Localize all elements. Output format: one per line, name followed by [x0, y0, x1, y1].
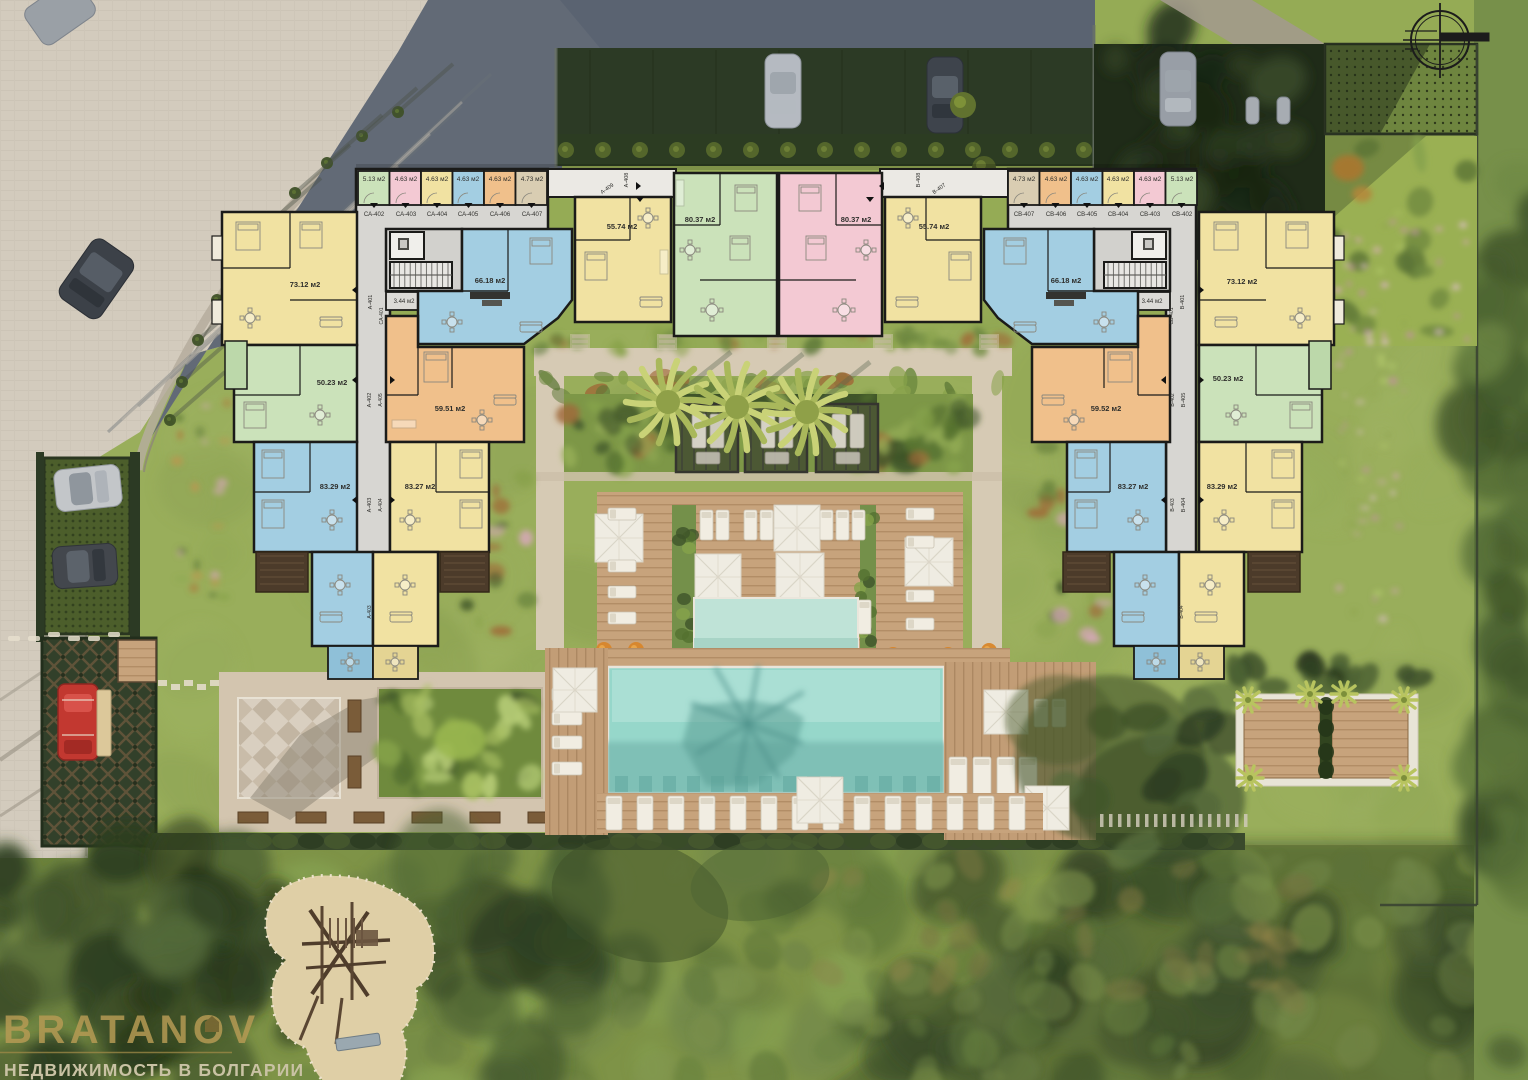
svg-text:CB-403: CB-403 — [1140, 212, 1161, 218]
svg-text:55.74 м2: 55.74 м2 — [919, 222, 950, 231]
svg-text:50.23 м2: 50.23 м2 — [1213, 374, 1244, 383]
svg-text:4.73 м2: 4.73 м2 — [521, 176, 544, 183]
svg-text:НЕДВИЖИМОСТЬ В БОЛГАРИИ: НЕДВИЖИМОСТЬ В БОЛГАРИИ — [4, 1060, 304, 1080]
svg-text:CA-407: CA-407 — [522, 212, 543, 218]
svg-text:CA-401: CA-401 — [379, 307, 385, 324]
svg-text:73.12 м2: 73.12 м2 — [290, 280, 321, 289]
svg-text:B-402: B-402 — [1170, 393, 1176, 407]
svg-text:B-408: B-408 — [916, 173, 922, 188]
svg-text:4.63 м2: 4.63 м2 — [489, 176, 512, 183]
svg-text:CB-404: CB-404 — [1108, 212, 1129, 218]
svg-text:80.37 м2: 80.37 м2 — [841, 215, 872, 224]
svg-text:59.52 м2: 59.52 м2 — [1091, 404, 1122, 413]
svg-text:BRATANOV: BRATANOV — [3, 1008, 260, 1052]
svg-text:CB-406: CB-406 — [1046, 212, 1067, 218]
svg-text:B-403: B-403 — [1170, 498, 1176, 512]
svg-text:CA-404: CA-404 — [427, 212, 448, 218]
svg-text:80.37 м2: 80.37 м2 — [685, 215, 716, 224]
svg-text:CB-405: CB-405 — [1077, 212, 1098, 218]
svg-text:CA-406: CA-406 — [490, 212, 511, 218]
svg-text:4.63 м2: 4.63 м2 — [1139, 176, 1162, 183]
svg-text:4.63 м2: 4.63 м2 — [1076, 176, 1099, 183]
svg-text:B-404: B-404 — [1181, 498, 1187, 513]
svg-text:A-405: A-405 — [378, 393, 384, 407]
svg-text:4.63 м2: 4.63 м2 — [1045, 176, 1068, 183]
svg-text:5.13 м2: 5.13 м2 — [1171, 176, 1194, 183]
svg-text:B-404: B-404 — [1179, 605, 1185, 619]
svg-text:83.29 м2: 83.29 м2 — [320, 482, 351, 491]
svg-text:4.73 м2: 4.73 м2 — [1013, 176, 1036, 183]
svg-text:CB-407: CB-407 — [1014, 212, 1035, 218]
svg-text:A-403: A-403 — [367, 498, 373, 513]
svg-text:CA-403: CA-403 — [396, 212, 417, 218]
svg-text:66.18 м2: 66.18 м2 — [1051, 276, 1082, 285]
svg-text:4.63 м2: 4.63 м2 — [395, 176, 418, 183]
svg-text:A-403: A-403 — [367, 605, 373, 619]
svg-text:83.27 м2: 83.27 м2 — [405, 482, 436, 491]
svg-text:4.63 м2: 4.63 м2 — [426, 176, 449, 183]
svg-text:73.12 м2: 73.12 м2 — [1227, 277, 1258, 286]
svg-text:B-401: B-401 — [1180, 295, 1186, 310]
svg-text:CA-405: CA-405 — [458, 212, 479, 218]
svg-text:3.44 м2: 3.44 м2 — [1142, 299, 1163, 305]
svg-text:3.44 м2: 3.44 м2 — [394, 299, 415, 305]
svg-text:55.74 м2: 55.74 м2 — [607, 222, 638, 231]
svg-text:4.63 м2: 4.63 м2 — [457, 176, 480, 183]
svg-text:CB-402: CB-402 — [1172, 212, 1193, 218]
svg-text:A-408: A-408 — [624, 173, 630, 188]
svg-text:50.23 м2: 50.23 м2 — [317, 378, 348, 387]
svg-text:CB-401: CB-401 — [1169, 307, 1175, 324]
svg-text:B-405: B-405 — [1181, 393, 1187, 408]
svg-text:A-404: A-404 — [378, 498, 384, 512]
svg-text:83.29 м2: 83.29 м2 — [1207, 482, 1238, 491]
svg-text:CA-402: CA-402 — [364, 212, 385, 218]
svg-text:83.27 м2: 83.27 м2 — [1118, 482, 1149, 491]
svg-text:A-401: A-401 — [368, 295, 374, 310]
svg-text:5.13 м2: 5.13 м2 — [363, 176, 386, 183]
svg-text:4.63 м2: 4.63 м2 — [1107, 176, 1130, 183]
svg-text:A-402: A-402 — [367, 393, 373, 408]
svg-text:66.18 м2: 66.18 м2 — [475, 276, 506, 285]
svg-text:59.51 м2: 59.51 м2 — [435, 404, 466, 413]
